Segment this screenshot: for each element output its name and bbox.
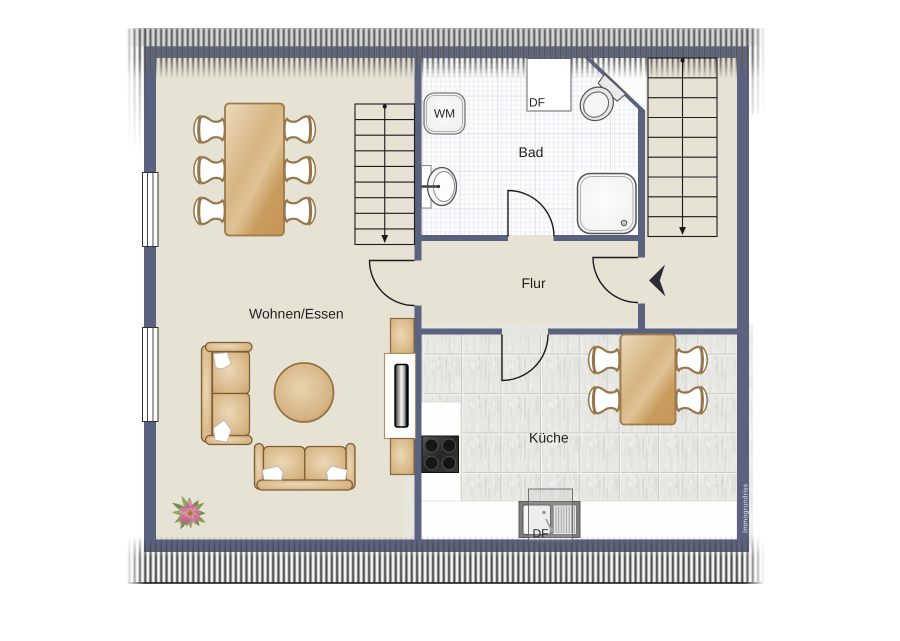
svg-text:DF: DF [529,96,545,110]
svg-text:DF: DF [533,526,549,540]
svg-text:Immogrundriss: Immogrundriss [742,483,750,533]
svg-text:Küche: Küche [529,430,569,446]
svg-text:Wohnen/Essen: Wohnen/Essen [249,306,344,322]
svg-text:Flur: Flur [522,275,546,291]
svg-text:Bad: Bad [519,144,544,160]
svg-text:WM: WM [434,106,455,120]
